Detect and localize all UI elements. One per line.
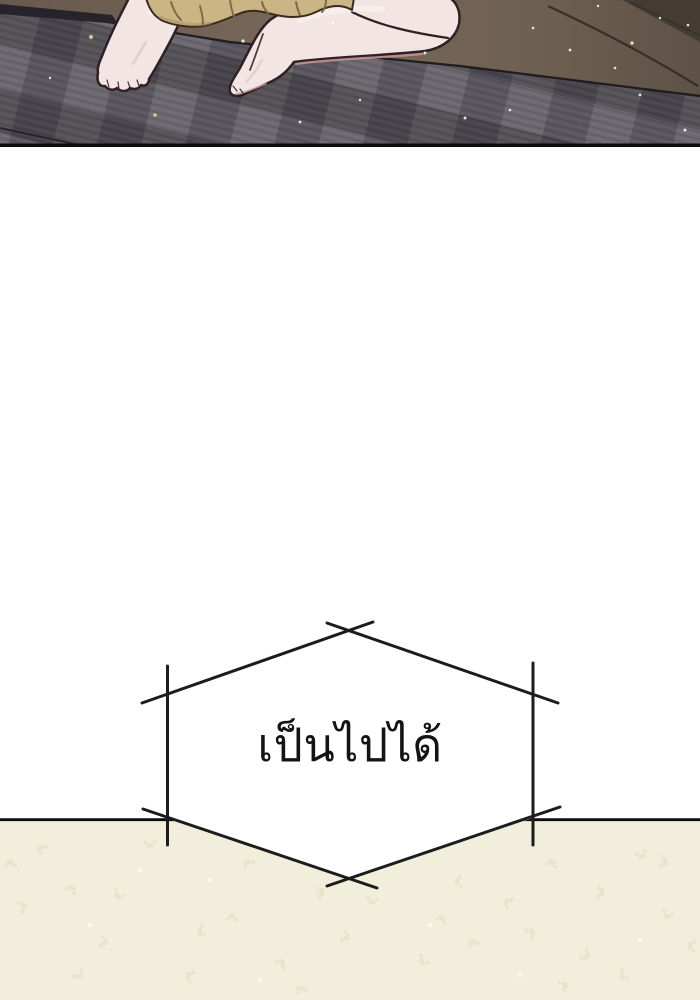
speech-bubble-text: เป็นไปได้ xyxy=(167,712,533,778)
webtoon-page: เป็นไปได้ xyxy=(0,0,700,1000)
panel-border xyxy=(0,144,700,148)
comic-scene xyxy=(0,0,700,1000)
top-panel-illustration xyxy=(0,0,700,147)
